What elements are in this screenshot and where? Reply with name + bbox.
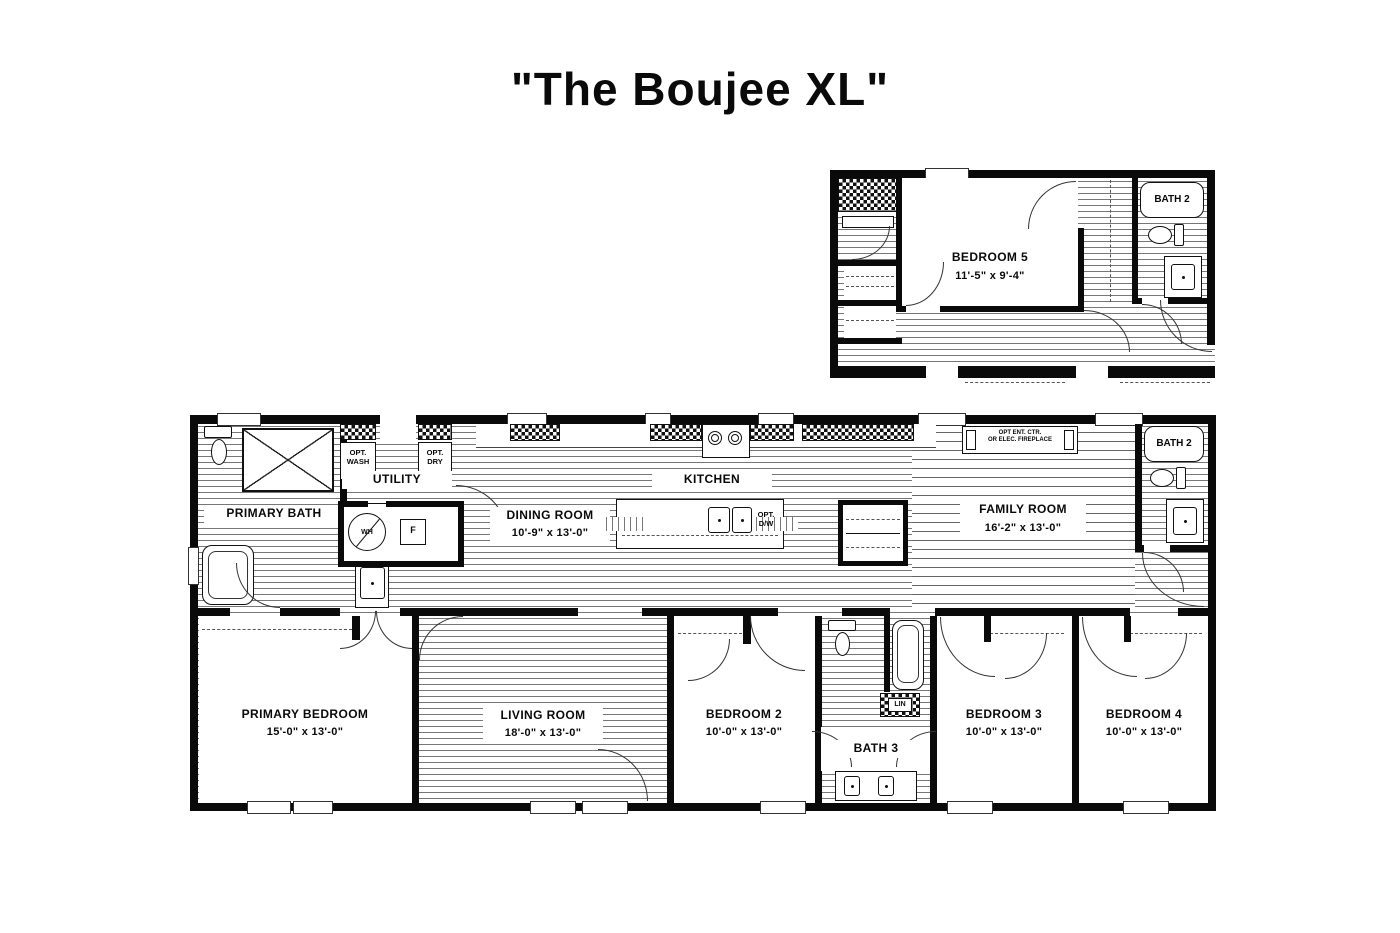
utility-label: UTILITY (342, 471, 452, 489)
sink (844, 776, 860, 796)
wall (1178, 608, 1216, 616)
living-room-label: LIVING ROOM (483, 707, 603, 725)
wall (412, 616, 419, 803)
opt-dry-line2: DRY (427, 457, 443, 466)
sink (878, 776, 894, 796)
island-counter-line (622, 535, 778, 536)
window (1123, 801, 1169, 814)
water-heater-label: WH (361, 529, 373, 536)
stove-burner (728, 431, 742, 445)
dining-room-dims: 10'-9" x 13'-0" (490, 525, 610, 541)
floor-plan-page: { "title": "\"The Boujee XL\"", "colors"… (0, 0, 1400, 933)
cut-line (1120, 382, 1210, 383)
bedroom5-dims: 11'-5" x 9'-4" (920, 269, 1060, 283)
toilet-bowl (1148, 226, 1172, 244)
furnace-label: F (400, 525, 426, 537)
window (293, 801, 333, 814)
toilet-bowl (1150, 469, 1174, 487)
sink (1173, 507, 1197, 535)
toilet-bowl (835, 632, 850, 656)
primary-bedroom-dims: 15'-0" x 13'-0" (225, 725, 385, 739)
wall (642, 608, 778, 616)
bedroom4-dims: 10'-0" x 13'-0" (1074, 725, 1214, 739)
wall (830, 170, 838, 370)
wall (884, 616, 890, 692)
kitchen-sink (708, 507, 730, 533)
closet-rod (1110, 180, 1111, 302)
bathtub-inner (897, 625, 919, 683)
toilet-tank (1176, 467, 1186, 489)
fireplace-side (966, 430, 976, 450)
wall (1108, 366, 1215, 378)
family-room-dims: 16'-2" x 13'-0" (960, 520, 1086, 536)
wall (903, 500, 908, 566)
washer-hookup-checker (340, 424, 376, 440)
window (760, 801, 806, 814)
wall (190, 803, 1216, 811)
bedroom3-dims: 10'-0" x 13'-0" (934, 725, 1074, 739)
window (247, 801, 291, 814)
sink (1171, 264, 1195, 290)
wall (667, 616, 674, 803)
fireplace-side (1064, 430, 1074, 450)
wall (815, 616, 822, 803)
toilet-tank (1174, 224, 1184, 246)
inset-closet-checker (838, 178, 898, 212)
wall (458, 501, 464, 567)
opt-wash-line2: WASH (347, 457, 370, 466)
wall (280, 608, 340, 616)
kitchen-sink (732, 507, 752, 533)
bedroom3-label: BEDROOM 3 (934, 707, 1074, 723)
plan-title: "The Boujee XL" (0, 62, 1400, 116)
window (188, 547, 199, 585)
bedroom4-label: BEDROOM 4 (1074, 707, 1214, 723)
stove-burner (708, 431, 722, 445)
opt-dw-label: OPT.D/W (750, 511, 782, 528)
inset-floor-plan: BEDROOM 5 11'-5" x 9'-4" BATH 2 (830, 170, 1215, 385)
primary-bedroom-label: PRIMARY BEDROOM (225, 707, 385, 723)
wall (830, 170, 1215, 178)
window (530, 801, 576, 814)
water-heater: WH (348, 513, 386, 551)
counter-checker (510, 424, 560, 441)
bedroom5-label: BEDROOM 5 (920, 250, 1060, 266)
wall (935, 608, 1130, 616)
wall (1132, 178, 1138, 302)
wall (190, 415, 1216, 424)
wall (400, 608, 578, 616)
window (217, 413, 261, 426)
closet-rod (678, 633, 742, 634)
main-floor-plan: PRIMARY BATH OPT.WASH OPT.DRY UTILITY WH… (190, 415, 1216, 811)
dining-room-label: DINING ROOM (490, 507, 610, 525)
wall (838, 338, 902, 344)
bedroom2-label: BEDROOM 2 (674, 707, 814, 723)
cut-line (965, 382, 1065, 383)
closet-rod (846, 286, 894, 287)
linen-label: LIN (888, 700, 912, 709)
pantry-shelf (846, 533, 900, 534)
family-room-label: FAMILY ROOM (960, 501, 1086, 519)
wall (958, 366, 1076, 378)
counter-checker (750, 424, 794, 441)
wall (190, 608, 230, 616)
bath2-label: BATH 2 (1144, 437, 1204, 450)
toilet-tank (204, 426, 232, 438)
sink (360, 567, 385, 599)
wall (1135, 424, 1142, 552)
kitchen-label: KITCHEN (652, 471, 772, 489)
door-opening (582, 801, 628, 814)
bedroom2-dims: 10'-0" x 13'-0" (674, 725, 814, 739)
toilet-tank (828, 620, 856, 631)
fireplace-label: OPT ENT. CTR.OR ELEC. FIREPLACE (978, 430, 1062, 444)
closet-rod (846, 320, 894, 321)
window (947, 801, 993, 814)
fireplace-line1: OPT ENT. CTR. (999, 430, 1042, 436)
closet-floor (844, 266, 896, 300)
inset-bath2-label: BATH 2 (1140, 193, 1204, 206)
island-end-hatch (602, 517, 648, 531)
shower (242, 428, 334, 492)
wall (338, 561, 464, 567)
wall (896, 178, 902, 312)
closet-rod (846, 276, 894, 277)
bath3-label: BATH 3 (836, 740, 916, 758)
counter-checker (802, 424, 914, 441)
back-door-opening (380, 415, 416, 441)
opt-wash-label: OPT.WASH (340, 449, 376, 466)
primary-bath-label: PRIMARY BATH (204, 505, 344, 523)
closet-floor (844, 306, 896, 338)
pantry-shelf (846, 519, 900, 520)
wall (838, 561, 908, 566)
wall (830, 366, 926, 378)
wall (1078, 228, 1084, 312)
pantry-shelf (846, 547, 900, 548)
living-room-dims: 18'-0" x 13'-0" (483, 725, 603, 741)
door-opening (1144, 545, 1170, 552)
closet-rod (202, 629, 352, 630)
wall (842, 608, 890, 616)
counter-checker (650, 424, 702, 441)
dryer-hookup-checker (418, 424, 452, 440)
opt-dry-label: OPT.DRY (418, 449, 452, 466)
door-opening (906, 306, 940, 312)
opt-dw-line2: D/W (759, 519, 774, 528)
fireplace-line2: OR ELEC. FIREPLACE (988, 437, 1052, 443)
toilet-bowl (211, 439, 227, 465)
